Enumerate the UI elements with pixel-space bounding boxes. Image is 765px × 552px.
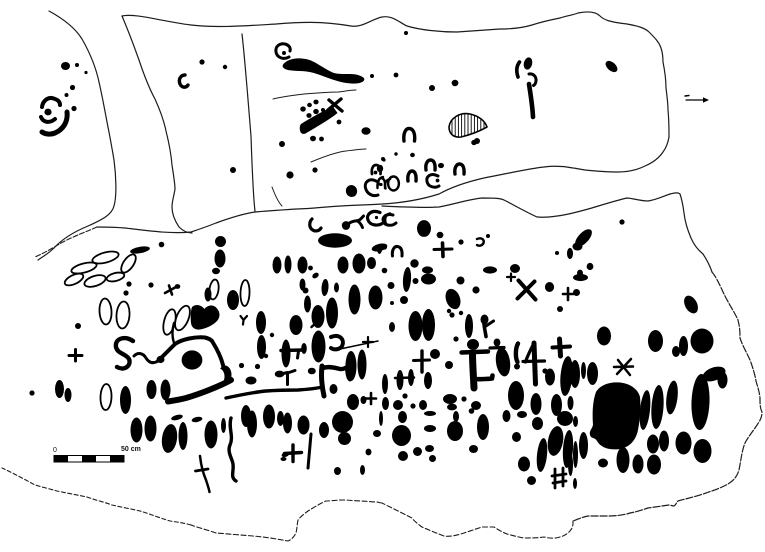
svg-text:50 cm: 50 cm: [121, 446, 141, 453]
svg-text:0: 0: [53, 447, 57, 454]
